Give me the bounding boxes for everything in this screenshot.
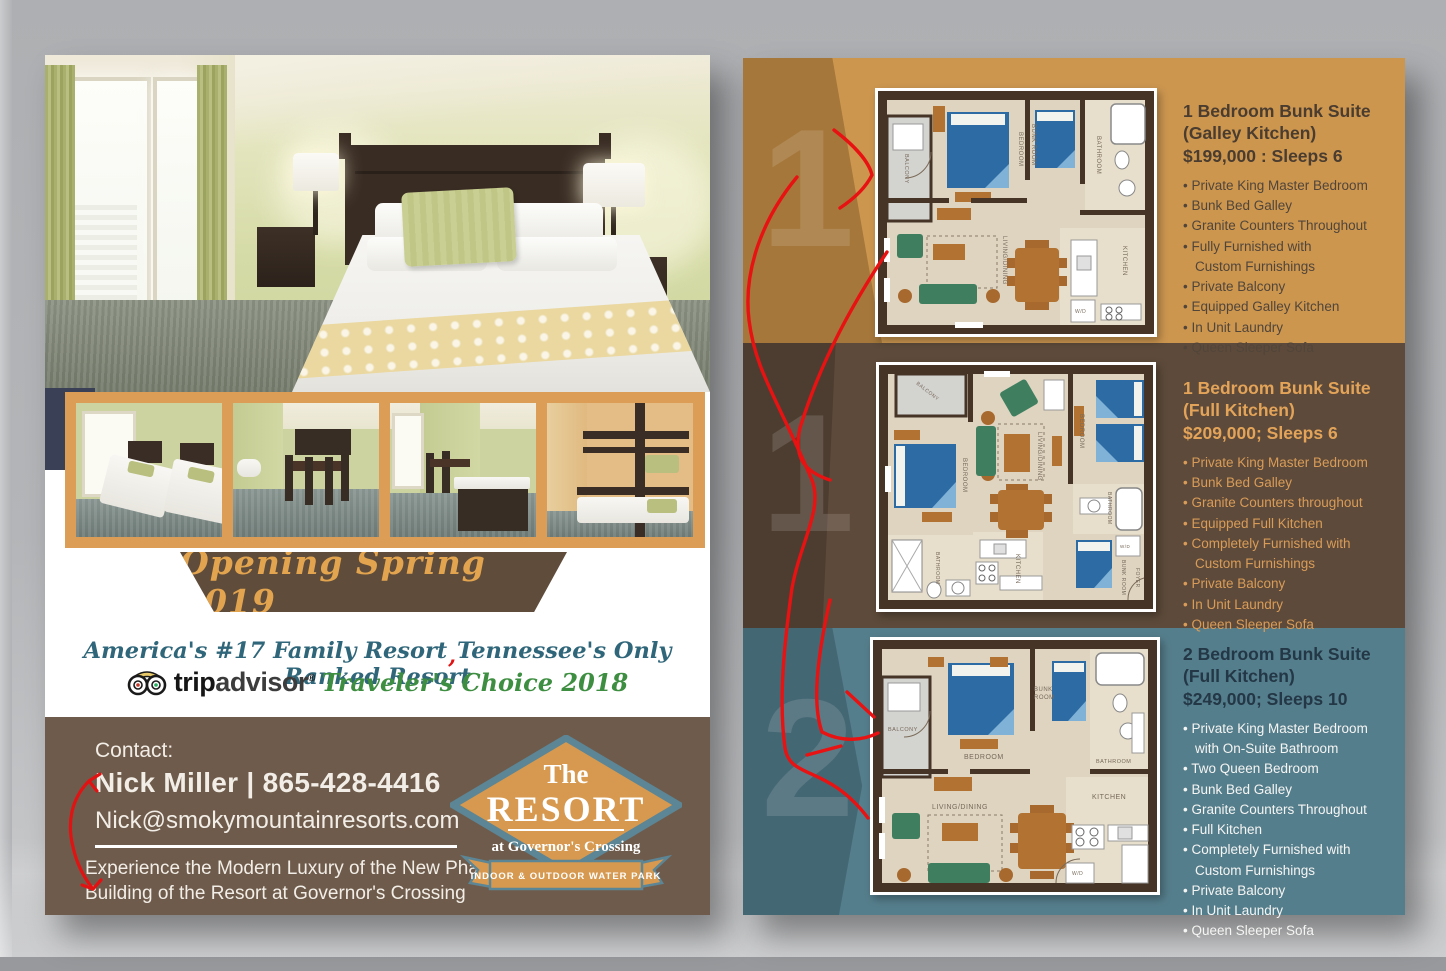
room-label: KITCHEN xyxy=(1121,246,1127,276)
thumb-island-base xyxy=(458,489,528,531)
room-label: FOYER xyxy=(1134,568,1140,588)
tripadvisor-row: tripadvisor® Traveler's Choice 2018 xyxy=(45,667,710,698)
room-label: BATHROOM xyxy=(1095,136,1101,174)
tripadvisor-wordmark: tripadvisor® xyxy=(174,667,315,698)
room-label: W/D xyxy=(1120,544,1130,549)
section-number-watermark: 1 xyxy=(761,104,848,272)
suite-description-galley: 1 Bedroom Bunk Suite (Galley Kitchen) $1… xyxy=(1183,100,1401,358)
flyer-mockup-canvas: Opening Spring 2019 America's #17 Family… xyxy=(0,0,1446,971)
photo-lamp-right xyxy=(583,163,645,207)
headboard-post xyxy=(339,133,351,159)
headboard-post xyxy=(599,133,611,159)
suite-feature-item: Bunk Bed Galley xyxy=(1183,473,1401,493)
opening-banner: Opening Spring 2019 xyxy=(180,552,567,612)
room-label: BEDROOM xyxy=(1078,414,1084,449)
suite-subtitle: (Full Kitchen) xyxy=(1183,665,1401,687)
thumb-island-counter xyxy=(454,477,530,489)
background-bottom-edge xyxy=(0,957,1446,971)
suite-description-two-bedroom: 2 Bedroom Bunk Suite (Full Kitchen) $249… xyxy=(1183,643,1401,942)
photo-bed-runner xyxy=(269,298,710,381)
room-label: BUNK ROOM xyxy=(1120,560,1126,595)
floorplan-galley-kitchen: BEDROOM BUNK ROOM BATHROOM BALCONY LIVIN… xyxy=(875,88,1157,337)
thumb-chair xyxy=(285,455,293,501)
floorplan-full-kitchen: BALCONY BEDROOM LIVING/DINING BEDROOM BA… xyxy=(876,362,1156,612)
suite-feature-item: In Unit Laundry xyxy=(1183,595,1401,615)
suite-title: 1 Bedroom Bunk Suite xyxy=(1183,377,1401,399)
suite-feature-item: Granite Counters throughout xyxy=(1183,493,1401,513)
suite-feature-item: Private King Master Bedroom with On-Suit… xyxy=(1183,719,1401,760)
contact-name-phone: Nick Miller | 865-428-4416 xyxy=(95,767,441,799)
suite-feature-item: Equipped Full Kitchen xyxy=(1183,514,1401,534)
room-label: BALCONY xyxy=(888,727,918,733)
background-edge-strip xyxy=(0,0,12,971)
thumbnail-twin-bedroom xyxy=(76,403,222,537)
suite-feature-item: Bunk Bed Galley xyxy=(1183,780,1401,800)
flyer-page-back: 1 1 2 xyxy=(743,58,1405,915)
hero-bedroom-photo xyxy=(45,55,710,392)
suite-feature-item: Private Balcony xyxy=(1183,881,1401,901)
room-label: BEDROOM xyxy=(964,754,1004,761)
thumb-bunk-pillow xyxy=(645,455,679,473)
flyer-page-front: Opening Spring 2019 America's #17 Family… xyxy=(45,55,710,915)
room-label: BATHROOM xyxy=(1106,492,1112,525)
opening-banner-text: Opening Spring 2019 xyxy=(180,543,567,621)
travelers-choice-award: Traveler's Choice 2018 xyxy=(322,668,628,697)
contact-divider xyxy=(95,845,457,848)
suite-feature-item: Queen Sleeper Sofa xyxy=(1183,615,1401,635)
tripadvisor-word-advisor: advisor xyxy=(215,667,308,697)
thumb-bunk-rail xyxy=(577,487,689,495)
suite-feature-item: In Unit Laundry xyxy=(1183,901,1401,921)
tagline-part1: America's #17 Family Resort xyxy=(83,638,447,664)
logo-location: at Governor's Crossing xyxy=(492,839,641,855)
suite-feature-item: Private Balcony xyxy=(1183,277,1401,297)
contact-label: Contact: xyxy=(95,739,173,763)
thumb-bunk-rail xyxy=(583,431,689,439)
thumb-chair xyxy=(305,457,313,505)
suite-title: 2 Bedroom Bunk Suite xyxy=(1183,643,1401,665)
suite-feature-item: Granite Counters Throughout xyxy=(1183,800,1401,820)
tripadvisor-word-trip: trip xyxy=(174,667,216,697)
logo-the: The xyxy=(543,759,588,789)
red-annotation-arrow xyxy=(59,765,109,901)
photo-lamp-left xyxy=(293,153,339,191)
thumbnail-strip xyxy=(65,392,705,548)
registered-mark: ® xyxy=(308,673,315,684)
thumb-window xyxy=(392,413,424,489)
suite-subtitle: (Galley Kitchen) xyxy=(1183,122,1401,144)
suite-feature-item: Bunk Bed Galley xyxy=(1183,196,1401,216)
room-label: BUNK ROOM xyxy=(1030,124,1036,166)
headboard-trim xyxy=(355,171,595,174)
suite-subtitle: (Full Kitchen) xyxy=(1183,399,1401,421)
suite-feature-list: Private King Master BedroomBunk Bed Gall… xyxy=(1183,176,1401,358)
suite-feature-item: Equipped Galley Kitchen xyxy=(1183,297,1401,317)
proofing-comma-mark: , xyxy=(448,643,456,669)
section-number-watermark: 1 xyxy=(761,389,848,557)
room-label: LIVING/DINING xyxy=(932,804,988,811)
room-label: ROOM xyxy=(1034,695,1055,701)
room-label: BATHROOM xyxy=(1096,759,1131,765)
suite-price: $199,000 : Sleeps 6 xyxy=(1183,146,1401,167)
thumb-lamp xyxy=(237,459,261,477)
room-label: BEDROOM xyxy=(961,458,967,493)
suite-feature-item: Private King Master Bedroom xyxy=(1183,176,1401,196)
section-number-watermark: 2 xyxy=(761,674,848,842)
room-label: W/D xyxy=(1072,871,1083,877)
thumb-table xyxy=(430,459,470,467)
suite-feature-item: Completely Furnished with Custom Furnish… xyxy=(1183,840,1401,881)
room-label: BEDROOM xyxy=(1017,132,1023,167)
room-label: KITCHEN xyxy=(1092,794,1126,801)
thumb-bunk-pillow xyxy=(647,499,677,513)
thumb-chair xyxy=(442,451,450,493)
thumb-bunk-rail xyxy=(583,447,689,453)
room-label: W/D xyxy=(1075,309,1086,315)
suite-feature-item: Private King Master Bedroom xyxy=(1183,453,1401,473)
logo-ribbon-text: INDOOR & OUTDOOR WATER PARK xyxy=(471,871,662,882)
suite-title: 1 Bedroom Bunk Suite xyxy=(1183,100,1401,122)
thumbnail-bunk-beds xyxy=(547,403,693,537)
thumbnail-kitchen-island xyxy=(390,403,536,537)
logo-resort: RESORT xyxy=(487,789,646,829)
suite-feature-item: Fully Furnished with Custom Furnishings xyxy=(1183,237,1401,278)
suite-feature-item: Completely Furnished with Custom Furnish… xyxy=(1183,534,1401,575)
thumb-kitchen-cabinets xyxy=(295,429,351,455)
suite-feature-item: Queen Sleeper Sofa xyxy=(1183,921,1401,941)
room-label: BATHROOM xyxy=(934,552,940,585)
suite-feature-list: Private King Master BedroomBunk Bed Gall… xyxy=(1183,453,1401,635)
contact-email: Nick@smokymountainresorts.com xyxy=(95,807,459,835)
floorplan-two-bedroom: BALCONY BEDROOM BUNK ROOM BATHROOM LIVIN… xyxy=(870,637,1160,895)
suite-price: $209,000; Sleeps 6 xyxy=(1183,423,1401,444)
thumb-dining-table xyxy=(289,461,341,471)
photo-lamp-stem-left xyxy=(313,187,318,235)
room-label: LIVING/DINING xyxy=(1001,236,1007,285)
resort-logo: The RESORT at Governor's Crossing INDOOR… xyxy=(450,735,682,902)
room-label: LIVING/DINING xyxy=(1036,432,1042,481)
photo-accent-pillow xyxy=(401,187,517,267)
suite-feature-item: Granite Counters Throughout xyxy=(1183,216,1401,236)
photo-nightstand-left xyxy=(257,227,315,287)
thumb-chair xyxy=(341,455,349,501)
suite-feature-item: In Unit Laundry xyxy=(1183,318,1401,338)
suite-description-full-kitchen: 1 Bedroom Bunk Suite (Full Kitchen) $209… xyxy=(1183,377,1401,635)
thumbnail-dining-area xyxy=(233,403,379,537)
room-label: BUNK xyxy=(1034,687,1053,693)
room-label: KITCHEN xyxy=(1014,554,1020,584)
suite-feature-item: Private Balcony xyxy=(1183,574,1401,594)
suite-feature-list: Private King Master Bedroom with On-Suit… xyxy=(1183,719,1401,942)
suite-price: $249,000; Sleeps 10 xyxy=(1183,689,1401,710)
contact-section: Contact: Nick Miller | 865-428-4416 Nick… xyxy=(45,717,710,915)
suite-feature-item: Queen Sleeper Sofa xyxy=(1183,338,1401,358)
tripadvisor-owl-icon xyxy=(127,670,167,696)
suite-feature-item: Full Kitchen xyxy=(1183,820,1401,840)
thumb-chair xyxy=(325,457,333,505)
suite-feature-item: Two Queen Bedroom xyxy=(1183,759,1401,779)
room-label: BALCONY xyxy=(903,154,909,184)
